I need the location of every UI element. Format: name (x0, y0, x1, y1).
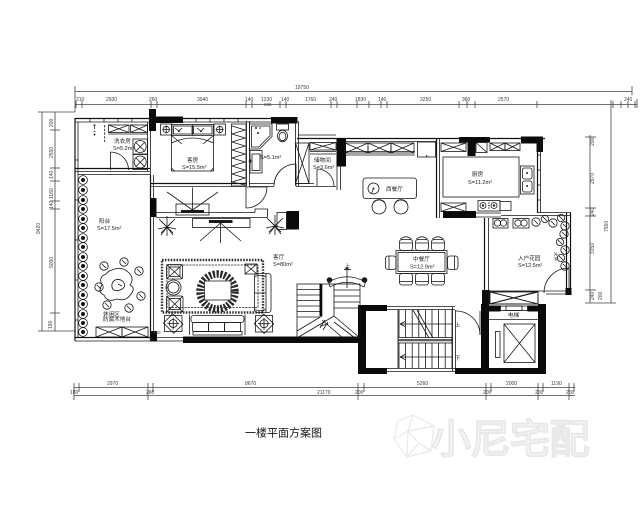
svg-text:140: 140 (49, 200, 55, 209)
svg-text:2550: 2550 (49, 147, 55, 158)
svg-text:上: 上 (455, 321, 461, 329)
svg-text:中餐厅: 中餐厅 (413, 255, 430, 263)
svg-text:下: 下 (455, 355, 461, 362)
svg-text:西餐厅: 西餐厅 (386, 185, 403, 193)
svg-text:3150: 3150 (590, 243, 596, 254)
svg-text:2970: 2970 (590, 173, 596, 184)
svg-text:200: 200 (590, 137, 596, 146)
svg-text:一楼平面方案图: 一楼平面方案图 (245, 426, 322, 440)
svg-text:S=17.5m²: S=17.5m² (97, 226, 122, 232)
svg-text:储物间: 储物间 (314, 156, 331, 164)
svg-text:S=5.2m²: S=5.2m² (113, 146, 134, 152)
svg-text:3250: 3250 (420, 97, 431, 103)
svg-text:21170: 21170 (317, 390, 331, 396)
svg-text:洗衣房: 洗衣房 (114, 137, 131, 145)
svg-text:厨房: 厨房 (472, 170, 484, 178)
svg-text:上: 上 (345, 262, 351, 270)
svg-text:240: 240 (329, 97, 338, 103)
svg-text:140: 140 (49, 170, 55, 179)
svg-text:S=15.5m²: S=15.5m² (182, 165, 207, 171)
svg-text:140: 140 (378, 97, 387, 103)
svg-text:3940: 3940 (197, 97, 208, 103)
svg-text:150: 150 (153, 330, 161, 335)
svg-text:260: 260 (149, 97, 158, 103)
svg-text:1160: 1160 (49, 188, 55, 199)
svg-text:5260: 5260 (417, 381, 428, 387)
svg-text:200: 200 (535, 390, 544, 396)
svg-text:240: 240 (590, 207, 596, 216)
svg-text:190: 190 (48, 320, 54, 329)
svg-text:S=12.5m²: S=12.5m² (518, 263, 543, 269)
svg-text:7560: 7560 (604, 221, 610, 232)
svg-text:2970: 2970 (107, 381, 118, 387)
svg-text:S=12.9m²: S=12.9m² (410, 265, 435, 271)
svg-text:5050: 5050 (49, 257, 55, 268)
svg-text:200: 200 (49, 118, 55, 127)
svg-text:2000: 2000 (506, 381, 517, 387)
svg-text:260: 260 (146, 390, 155, 396)
svg-text:小尼宅配: 小尼宅配 (431, 417, 589, 462)
svg-text:360: 360 (462, 97, 471, 103)
svg-text:阳台: 阳台 (99, 217, 111, 225)
svg-text:9420: 9420 (36, 223, 42, 234)
svg-text:2930: 2930 (106, 97, 117, 103)
svg-text:200: 200 (483, 390, 492, 396)
svg-text:S=5.1m²: S=5.1m² (260, 155, 281, 161)
svg-text:电梯: 电梯 (508, 311, 520, 319)
svg-text:2570: 2570 (498, 97, 509, 103)
svg-text:1190: 1190 (551, 381, 562, 387)
svg-text:232: 232 (264, 102, 272, 107)
svg-text:200: 200 (355, 390, 364, 396)
svg-text:防腐木地台: 防腐木地台 (103, 315, 131, 323)
svg-text:1760: 1760 (305, 97, 316, 103)
svg-text:8670: 8670 (245, 381, 256, 387)
svg-text:19750: 19750 (295, 85, 309, 91)
svg-text:210: 210 (76, 97, 85, 103)
svg-text:客厅: 客厅 (273, 253, 285, 261)
svg-text:S=80m²: S=80m² (273, 262, 293, 268)
svg-text:200: 200 (566, 390, 575, 396)
svg-text:240: 240 (590, 291, 596, 300)
svg-text:水井: 水井 (552, 252, 559, 262)
svg-text:180: 180 (70, 390, 79, 396)
svg-text:客房: 客房 (187, 156, 199, 164)
svg-text:140: 140 (281, 97, 290, 103)
svg-text:入户花园: 入户花园 (518, 254, 541, 262)
svg-text:S=11.2m²: S=11.2m² (468, 180, 492, 186)
svg-text:200: 200 (598, 291, 604, 300)
